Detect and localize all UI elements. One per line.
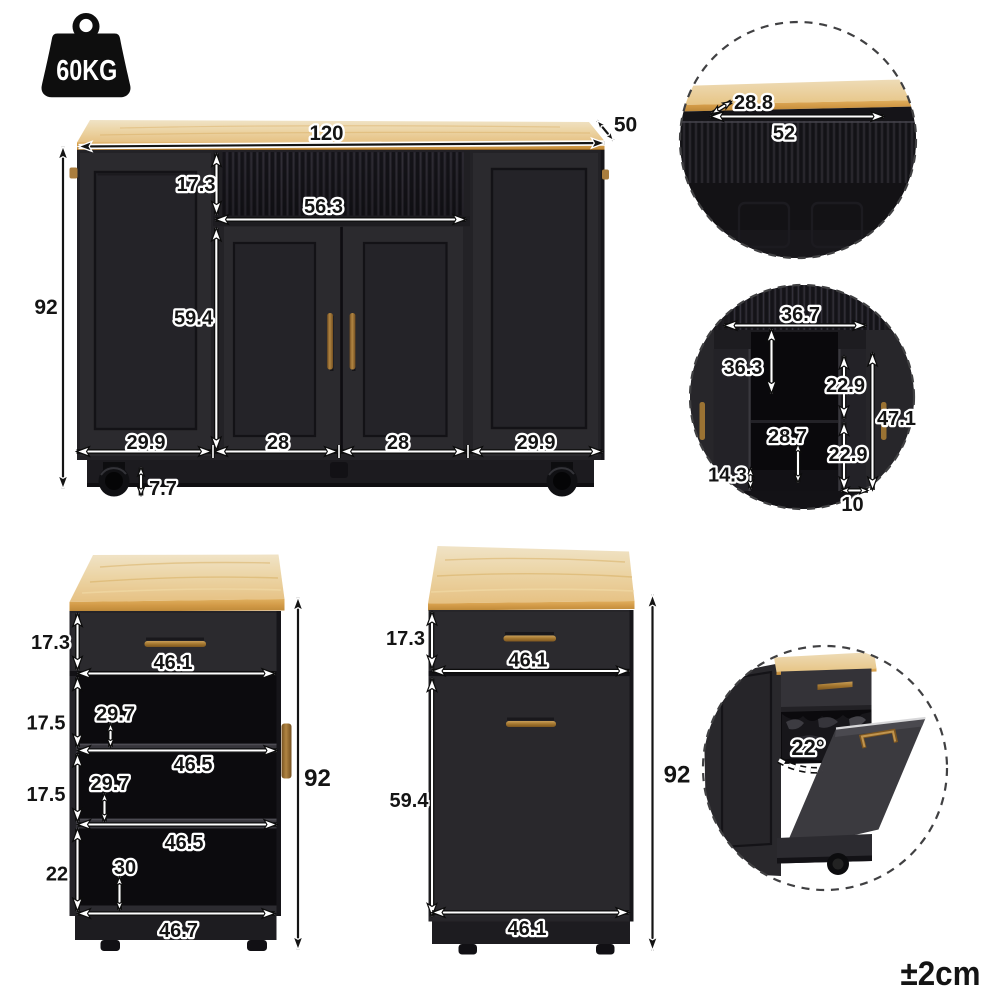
svg-text:120: 120: [310, 122, 344, 145]
svg-text:46.5: 46.5: [165, 832, 204, 854]
svg-text:22°: 22°: [791, 735, 824, 760]
svg-text:56.3: 56.3: [304, 196, 343, 218]
svg-text:50: 50: [614, 114, 637, 137]
svg-text:46.5: 46.5: [174, 754, 213, 776]
svg-text:±2cm: ±2cm: [901, 955, 981, 993]
svg-text:22.9: 22.9: [826, 375, 865, 397]
svg-text:17.3: 17.3: [31, 632, 70, 654]
svg-text:10: 10: [841, 494, 863, 516]
svg-text:22.9: 22.9: [829, 444, 868, 466]
svg-text:14.3: 14.3: [708, 465, 747, 487]
svg-text:28: 28: [267, 432, 289, 454]
svg-text:28.7: 28.7: [768, 426, 807, 448]
svg-text:36.3: 36.3: [724, 357, 763, 379]
svg-text:52: 52: [773, 123, 795, 145]
svg-text:46.1: 46.1: [154, 652, 193, 674]
svg-text:92: 92: [34, 296, 57, 319]
svg-text:22: 22: [46, 864, 68, 886]
svg-text:30: 30: [114, 857, 136, 879]
svg-text:29.9: 29.9: [517, 432, 556, 454]
svg-text:92: 92: [304, 765, 331, 792]
svg-text:17.5: 17.5: [27, 713, 66, 735]
svg-text:46.1: 46.1: [508, 918, 547, 940]
svg-text:46.1: 46.1: [509, 650, 548, 672]
svg-text:36.7: 36.7: [781, 304, 820, 326]
svg-text:92: 92: [664, 762, 691, 789]
svg-text:17.3: 17.3: [177, 174, 216, 196]
svg-text:17.5: 17.5: [27, 784, 66, 806]
svg-text:28: 28: [387, 432, 409, 454]
svg-text:28.8: 28.8: [734, 92, 773, 114]
svg-text:46.7: 46.7: [159, 920, 198, 942]
svg-text:29.7: 29.7: [91, 773, 130, 795]
svg-text:47.1: 47.1: [877, 408, 916, 430]
svg-text:17.3: 17.3: [386, 628, 425, 650]
svg-text:7.7: 7.7: [149, 478, 177, 500]
svg-text:59.4: 59.4: [174, 308, 214, 330]
svg-text:60KG: 60KG: [56, 55, 117, 87]
svg-text:29.9: 29.9: [127, 432, 166, 454]
svg-text:29.7: 29.7: [96, 704, 135, 726]
svg-text:59.4: 59.4: [390, 790, 430, 812]
